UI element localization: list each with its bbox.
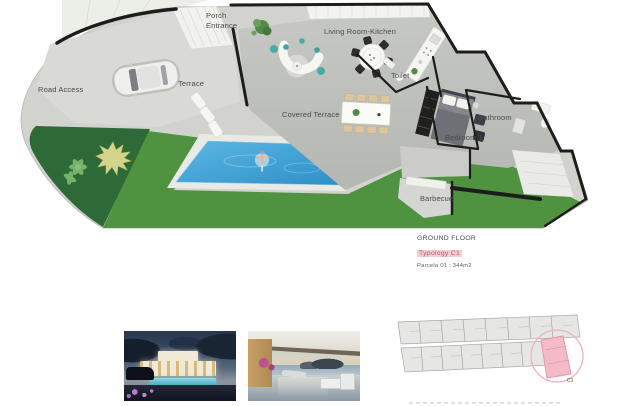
pergola-strip [306, 4, 430, 19]
brochure-page: Road Access Terrace Porch Entrance Livin… [0, 0, 620, 406]
floor-title: GROUND FLOOR [417, 235, 476, 242]
site-plan-highlighted-plot [541, 336, 571, 378]
parcel-info: Parcela 01 : 344m2 [417, 263, 476, 269]
label-terrace: Terrace [178, 79, 204, 89]
label-covered-terrace: Covered Terrace [282, 110, 362, 120]
label-living-room-kitchen: Living Room-Kitchen [324, 27, 434, 37]
thumbnail-terrace-sea-view-render [248, 331, 360, 401]
label-road-access: Road Access [38, 85, 86, 95]
label-bedroom-1: Bedroom 1 [445, 133, 483, 143]
site-plan-unit-label: C1 [567, 378, 574, 384]
typology-badge: Typology C1 [417, 250, 462, 257]
title-block: GROUND FLOOR Typology C1 Parcela 01 : 34… [417, 235, 476, 269]
site-plan-row-2 [401, 341, 551, 372]
thumbnail-exterior-night-render [124, 331, 236, 401]
site-plan: C1 [395, 312, 595, 406]
label-porch-entrance: Porch Entrance [206, 11, 258, 31]
label-bathroom: Bathroom [478, 113, 512, 123]
label-toilet: Toilet [391, 71, 409, 81]
label-barbecue: Barbecue [420, 194, 453, 204]
floor-plan [0, 0, 620, 270]
